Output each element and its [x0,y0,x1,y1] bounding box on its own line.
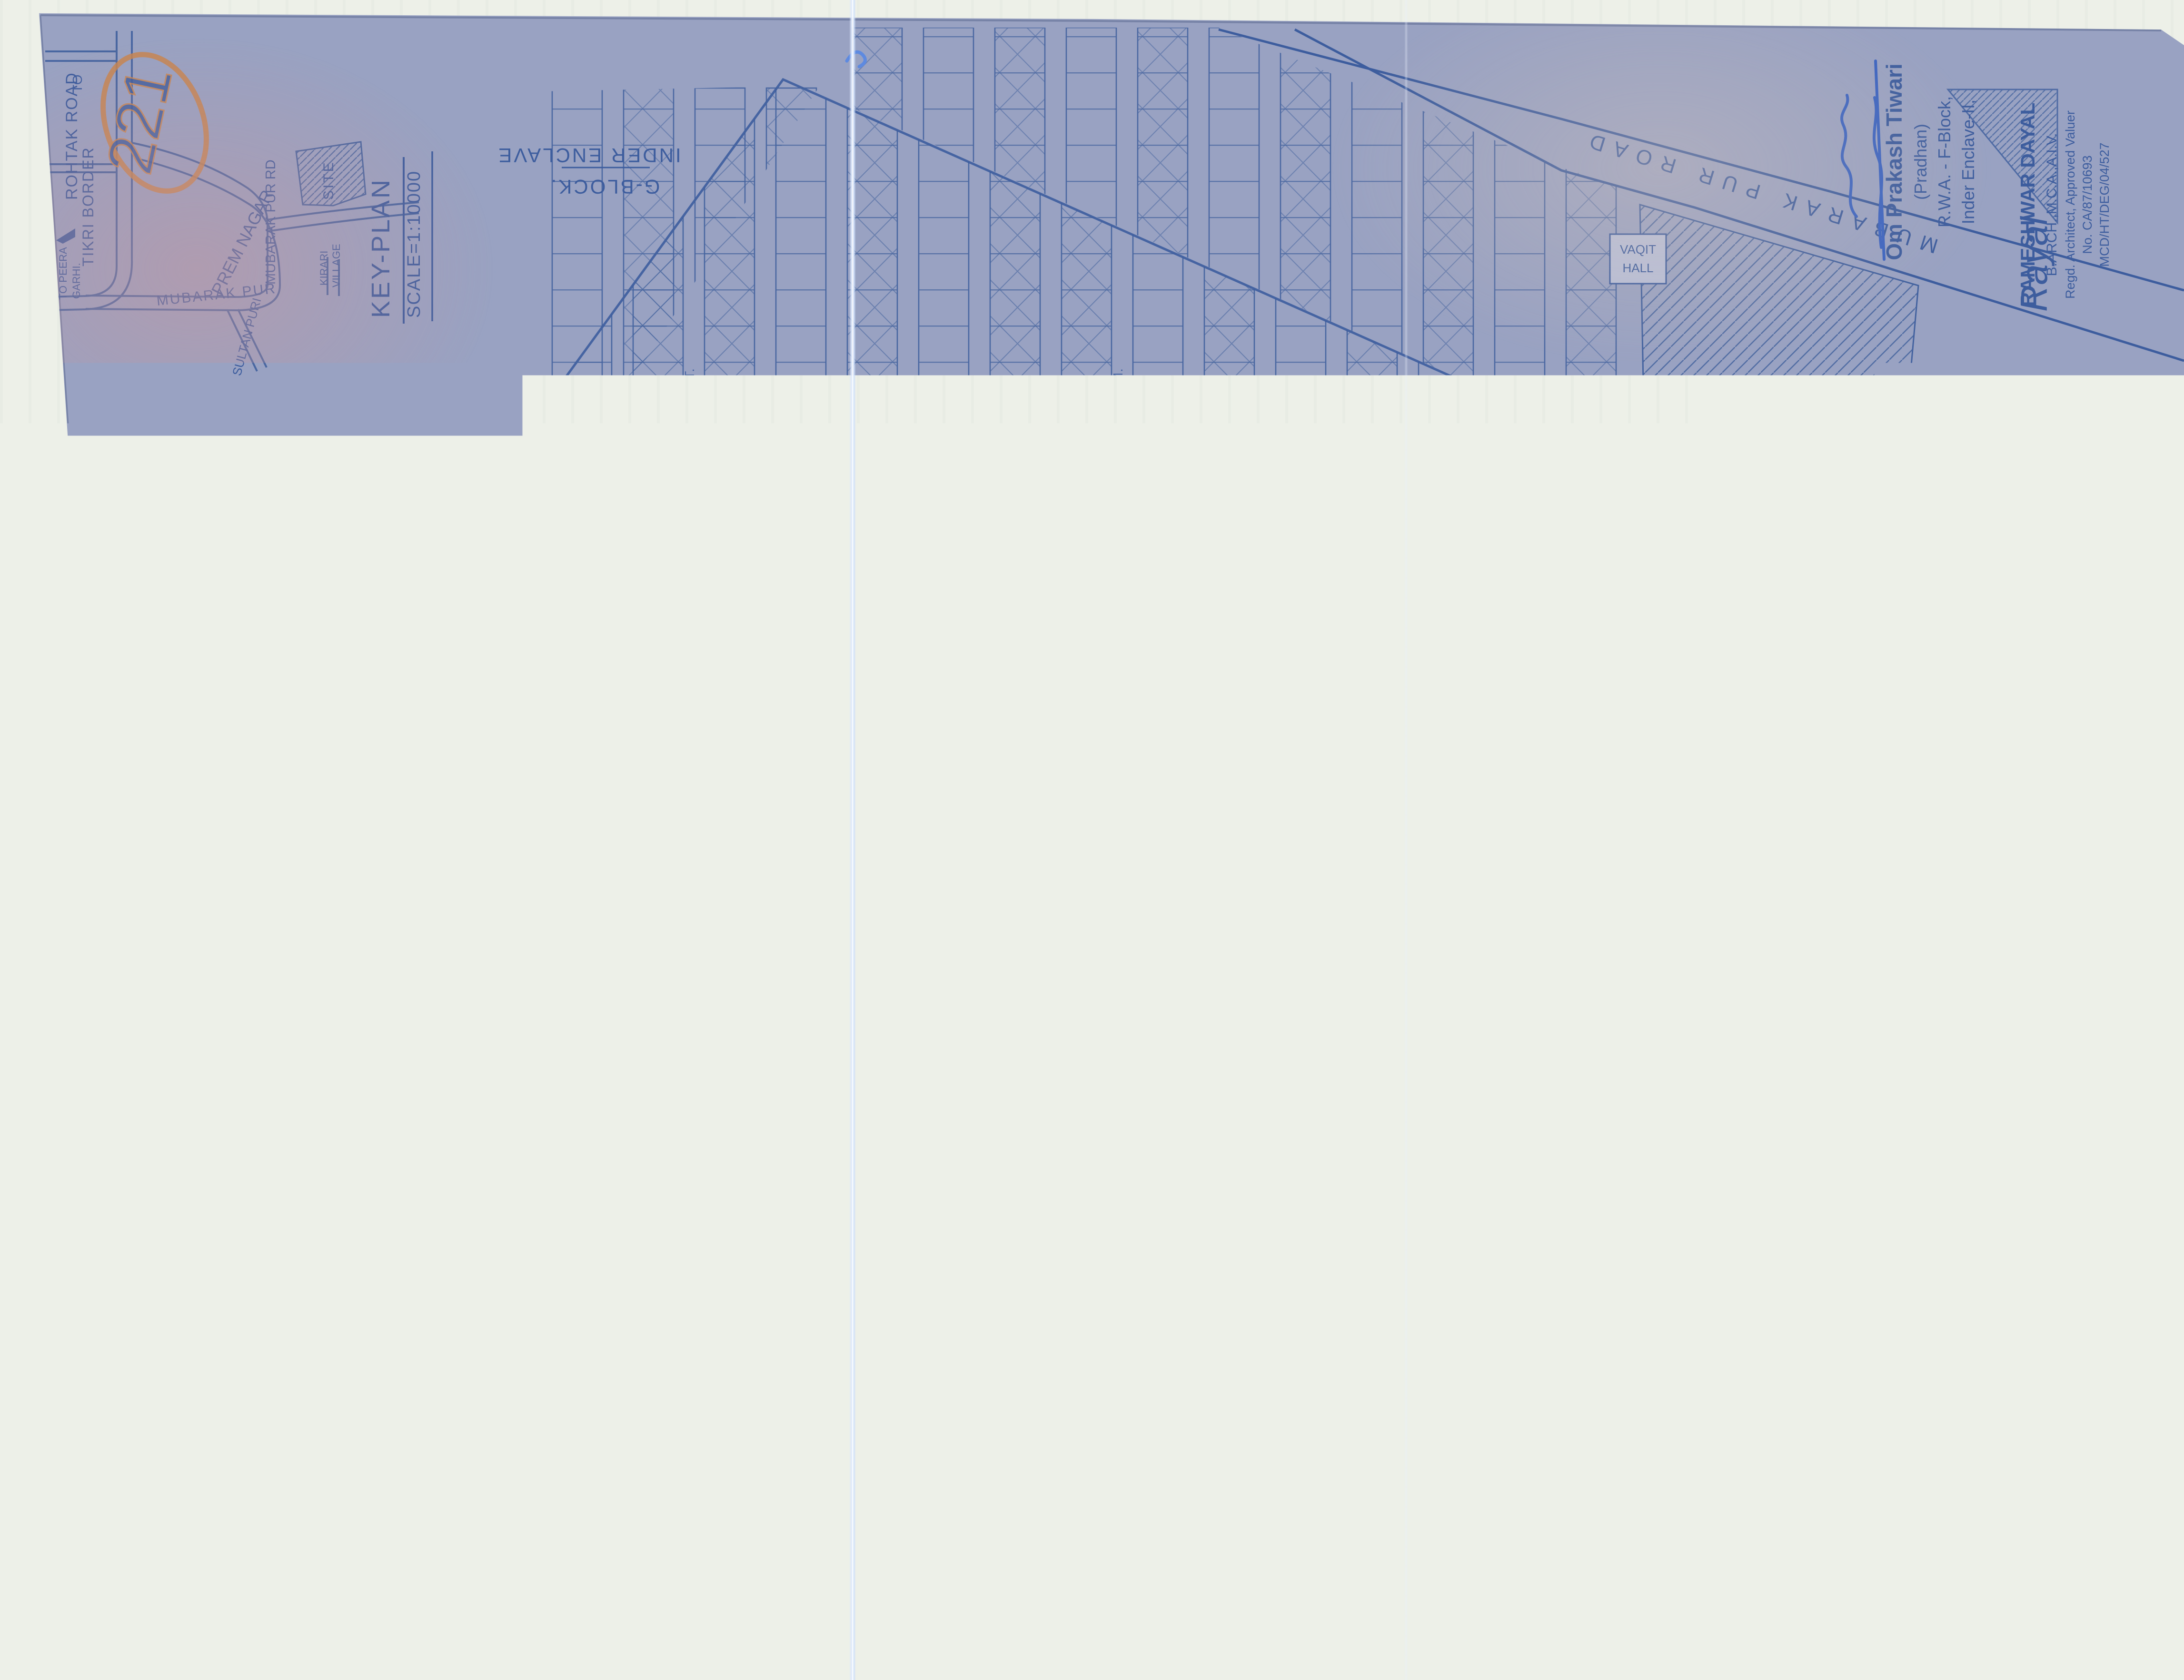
svg-text:VILLAGE: VILLAGE [330,244,342,287]
architect-signature: Rayal [2013,216,2055,312]
scale-note: SCALE = 1:1000 [231,859,263,1092]
vidhya-pati-nagar-label: V I D H Y A P A T I N A G A R [651,1490,1291,1524]
key-plan-scale: SCALE=1:10000 [404,170,424,318]
title-line3: FOR: R.W.A. F-BLOCK INDER ENCLAVE, PH-II… [155,631,183,1302]
key-plan [45,31,419,371]
hospital-label: HOSPITAL [1598,1098,1663,1113]
svg-text:GALI 6.1 M.: GALI 6.1 M. [1825,945,1839,1021]
svg-text:GALI 4.5 M.: GALI 4.5 M. [896,700,911,776]
svg-text:R.W.A. - F-Block,: R.W.A. - F-Block, [1935,96,1954,227]
hall-box: VAQIT HALL [1610,234,1666,284]
svg-text:GALI 4.5 M.: GALI 4.5 M. [682,945,697,1021]
svg-text:INDER ENCLAVE: INDER ENCLAVE [496,144,681,167]
svg-text:GALI 4.5 M.: GALI 4.5 M. [1753,700,1768,776]
svg-text:MCD/HT/DEG/04/527: MCD/HT/DEG/04/527 [2097,142,2112,267]
key-plan-title: KEY-PLAN [367,178,395,318]
road-flip-label: ROAD 7.6 M. [1672,1046,1794,1063]
north-arrow: N [347,780,443,878]
legend: LEGEND: TOTAL PLOT-1152. 1-BUILT-UP PLOT… [271,1028,373,1468]
north-letter: N [347,827,427,878]
svg-text:MASJID.: MASJID. [515,826,533,888]
svg-text:MUBARAK PUR RD: MUBARAK PUR RD [263,159,278,285]
svg-text:ROHTAK ROAD: ROHTAK ROAD [63,72,81,200]
svg-text:GALI 6 M.: GALI 6 M. [1468,712,1482,776]
svg-text:GARHI.: GARHI. [70,263,82,299]
road-band2-label: R O A D 7.6 M. W I D E [1107,792,1369,812]
svg-text:GALI 4.57 M.: GALI 4.57 M. [1111,368,1125,452]
svg-text:GALI-4.5 MT.: GALI-4.5 MT. [682,368,697,452]
svg-text:G-BLOCK.: G-BLOCK. [549,176,660,198]
svg-text:GALI 6 M.: GALI 6 M. [1325,1179,1340,1243]
portion-vidhya-pati-label: PORTION OF VIDHYA PATI NAGAR [994,1427,1444,1445]
svg-text:Regd. Architect, Approved Valu: Regd. Architect, Approved Valuer [2063,110,2077,299]
road-vertical-label: ROAD-6.1 M. [1646,1168,1663,1275]
svg-text:GALI 4.5 M.: GALI 4.5 M. [1253,945,1268,1021]
svg-text:GALI 4.5 M.: GALI 4.5 M. [968,376,983,452]
svg-text:GALI 7.6 M.: GALI 7.6 M. [825,1316,840,1392]
svg-text:SITE: SITE [321,160,337,200]
e-block-labels: E-BLOCK PH-II. INDER ENCLAVE [462,932,521,1156]
svg-text:GALI 6 M.: GALI 6 M. [825,388,840,452]
svg-text:GALI 7.6 M.: GALI 7.6 M. [1896,700,1911,776]
scanned-blueprint-sheet: R O A D 7.6 M. W I D E R O A D 7.6 M. W … [0,0,2184,1680]
svg-text:(Pradhan): (Pradhan) [1911,124,1930,200]
hall-label-line2: HALL [1622,261,1653,275]
svg-text:E-BLOCK: E-BLOCK [462,973,495,1142]
svg-text:No. CA/87/10693: No. CA/87/10693 [2080,155,2095,254]
elect-tran-label: ELECT. TRAN. [880,894,977,909]
mubarak-pur-road-right-label: MUBARAK PUR ROAD [1992,588,2020,1375]
road-band1-label: R O A D 7.6 M. W I D E [1107,471,1369,490]
title-line2: PHASE-II, MUBARAK PUR ROAD DELHI- [104,570,141,1278]
svg-text:Inder Enclave-II,: Inder Enclave-II, [1958,99,1978,224]
legend-item-built: 1-BUILT-UP PLOT MARK-⊠-921 [310,1125,335,1468]
blueprint-paper: R O A D 7.6 M. W I D E R O A D 7.6 M. W … [0,0,2184,1680]
svg-text:TO PEERA: TO PEERA [57,247,69,300]
svg-text:Om Prakash Tiwari: Om Prakash Tiwari [1882,63,1906,260]
svg-text:GALI 4.57 M.: GALI 4.57 M. [1539,937,1554,1021]
road-band4-label: R O A D 6.1 M. W I D E [964,1257,1226,1276]
legend-item-vacant: 2-VACANT PLOT MARK-□-231 [339,1141,365,1468]
svg-text:GALI-6 M.: GALI-6 M. [968,956,983,1021]
hall-label-line1: VAQIT [1620,242,1656,257]
svg-text:GALI-4.5 M.: GALI-4.5 M. [1253,375,1268,452]
svg-text:GALI-4.57 MT.: GALI-4.57 MT. [1182,683,1197,776]
road-band3-label: R O A D 7.6 M. W I D E [940,1037,1202,1057]
svg-text:SULTAN PURI: SULTAN PURI [229,296,264,377]
svg-text:PH-II. INDER ENCLAVE: PH-II. INDER ENCLAVE [501,932,521,1156]
hospital-box: HOSPITAL [1592,1090,1668,1120]
svg-text:GALI 4.5 M.: GALI 4.5 M. [754,1167,768,1243]
svg-text:GALI-4.5 MT.: GALI-4.5 MT. [1039,1159,1054,1243]
svg-text:KIRARI: KIRARI [318,251,330,286]
svg-text:GALI 6.1 M.: GALI 6.1 M. [611,700,625,776]
legend-heading: LEGEND: TOTAL PLOT-1152. [271,1085,301,1463]
svg-text:GALI 4.5 M.: GALI 4.5 M. [1753,1167,1768,1243]
plan-drawing: R O A D 7.6 M. W I D E R O A D 7.6 M. W … [0,0,2184,1680]
